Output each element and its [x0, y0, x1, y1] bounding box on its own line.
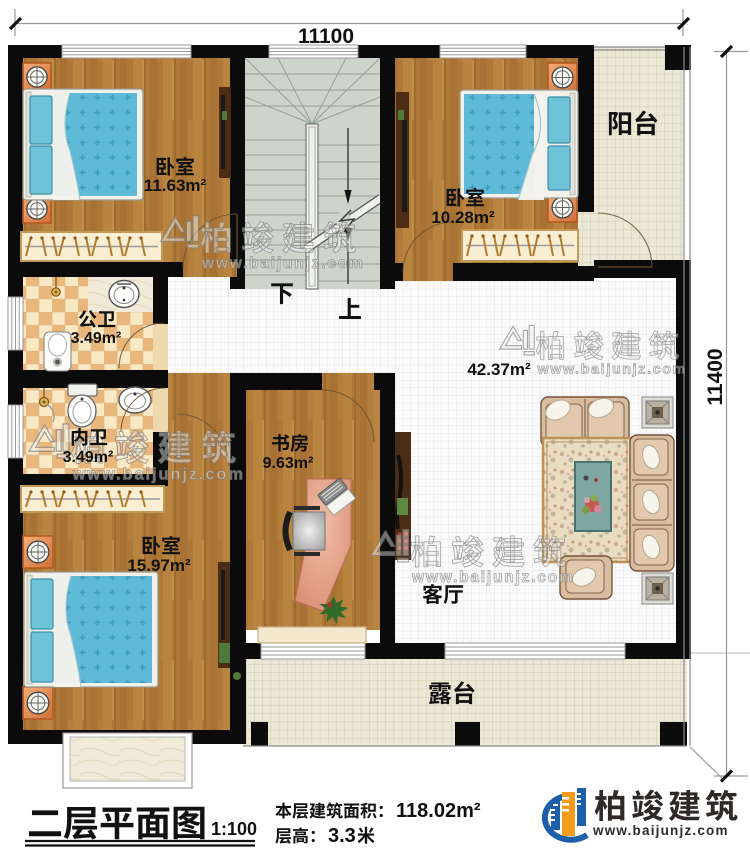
svg-text:9.63m²: 9.63m² [263, 455, 314, 472]
svg-text:www.baijunjz.com: www.baijunjz.com [201, 255, 365, 272]
svg-text:118.02m²: 118.02m² [396, 800, 481, 822]
svg-text:10.28m²: 10.28m² [431, 208, 495, 227]
svg-text:11100: 11100 [298, 25, 354, 48]
svg-text:3.49m²: 3.49m² [63, 449, 114, 466]
svg-text:3.49m²: 3.49m² [71, 330, 122, 347]
svg-text:www.baijunjz.com: www.baijunjz.com [592, 823, 729, 838]
svg-text:www.baijunjz.com: www.baijunjz.com [536, 362, 686, 378]
svg-text:1:100: 1:100 [211, 819, 257, 839]
svg-text:3.3: 3.3 [328, 825, 356, 847]
svg-text:www.baijunjz.com: www.baijunjz.com [72, 465, 245, 483]
svg-text:11.63m²: 11.63m² [144, 176, 207, 195]
svg-text:11400: 11400 [704, 348, 727, 405]
svg-text:www.baijunjz.com: www.baijunjz.com [411, 569, 575, 586]
svg-text:42.37m²: 42.37m² [467, 360, 531, 379]
svg-text:15.97m²: 15.97m² [127, 556, 191, 575]
